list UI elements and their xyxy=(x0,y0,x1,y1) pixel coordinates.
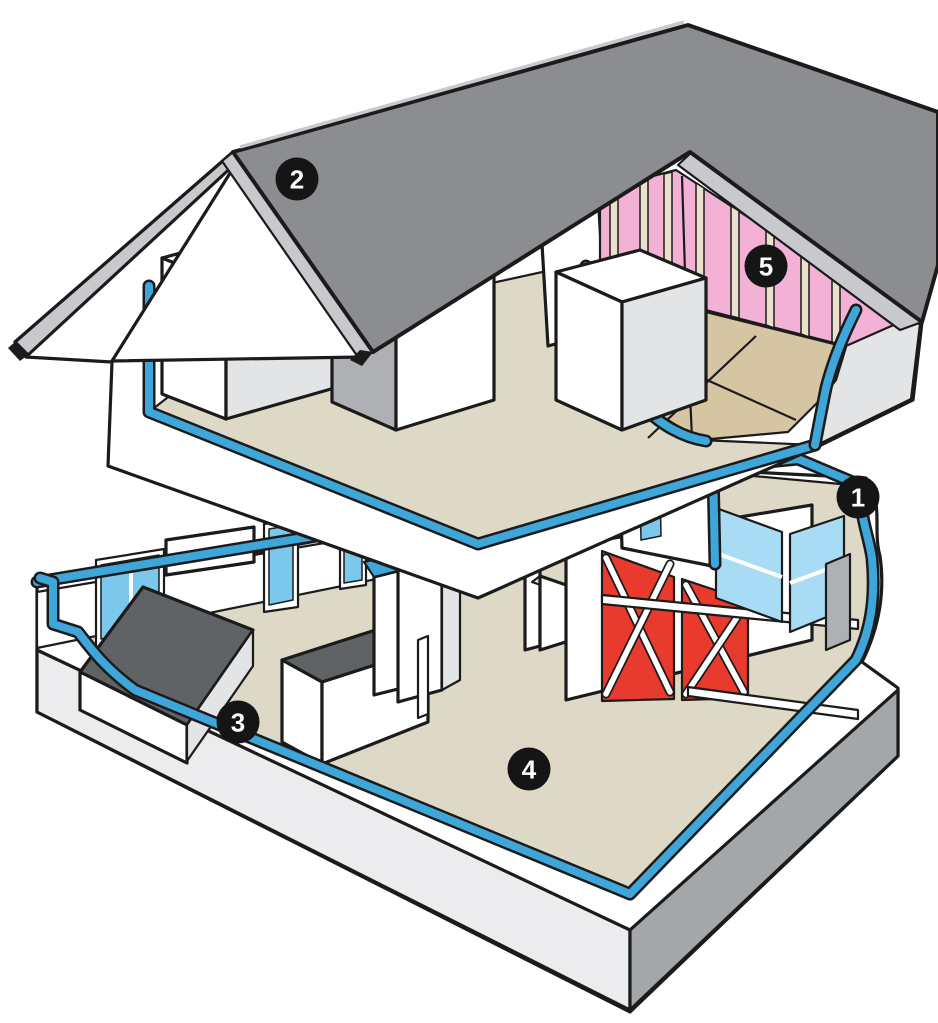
callout-marker-1: 1 xyxy=(837,476,880,519)
floor-stud xyxy=(418,636,428,718)
callout-label: 2 xyxy=(290,166,304,192)
callout-marker-3: 3 xyxy=(217,701,260,744)
corner-shadow xyxy=(826,554,850,650)
wall-stud xyxy=(731,206,739,318)
callout-marker-5: 5 xyxy=(745,245,788,288)
wall-stud xyxy=(801,252,809,337)
house-cutaway-illustration: 1 2 3 4 5 xyxy=(0,0,938,1023)
callout-label: 4 xyxy=(522,756,536,782)
callout-label: 3 xyxy=(231,709,245,735)
callout-marker-4: 4 xyxy=(508,748,551,791)
callout-label: 1 xyxy=(851,484,865,510)
callout-marker-2: 2 xyxy=(276,158,319,201)
cutaway-svg xyxy=(0,0,938,1023)
callout-label: 5 xyxy=(759,253,773,279)
